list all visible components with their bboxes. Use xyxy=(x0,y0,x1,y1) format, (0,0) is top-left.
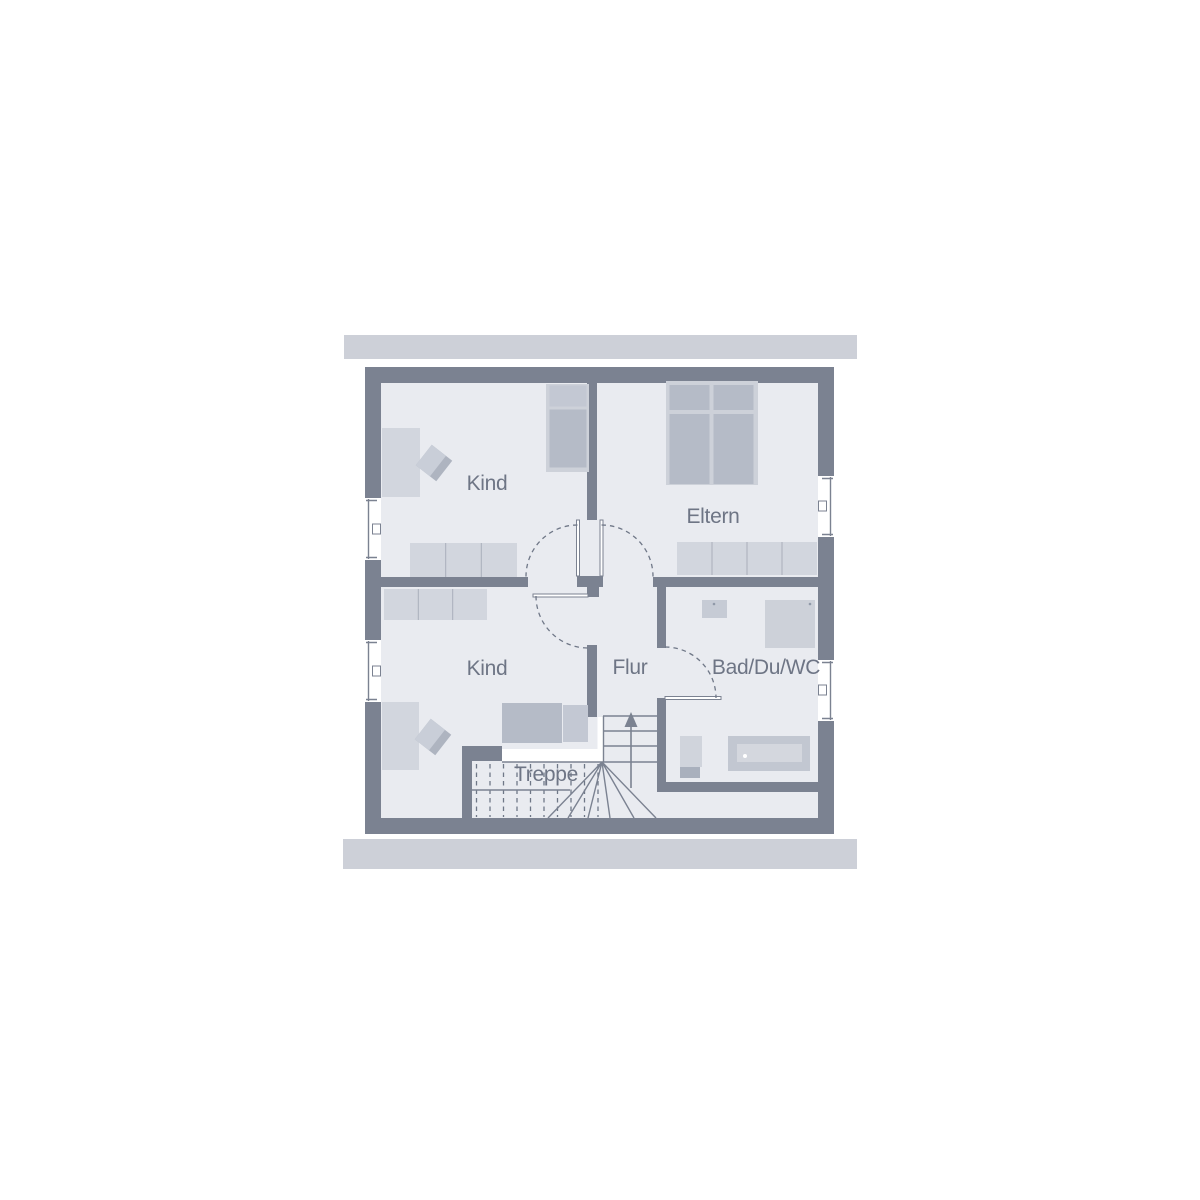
room-label-bad: Bad/Du/WC xyxy=(712,656,820,680)
bed-mattress xyxy=(550,410,587,468)
stair-head-block xyxy=(462,746,502,761)
wardrobe xyxy=(410,543,517,577)
floor-plan-drawing xyxy=(0,0,1200,1200)
sink xyxy=(702,600,727,618)
wardrobe xyxy=(384,589,487,620)
bed-mattress xyxy=(714,414,754,484)
stair-landing-edge xyxy=(598,717,604,762)
bathtub-basin xyxy=(737,744,802,762)
bed-pillow xyxy=(550,386,587,407)
room-label-flur: Flur xyxy=(613,656,648,680)
shower xyxy=(765,600,815,648)
window-eltern-right xyxy=(818,476,834,537)
window-bad-right xyxy=(818,660,834,721)
bed-pillow xyxy=(714,385,754,410)
stair-landing-edge xyxy=(502,749,603,762)
floor-plan: Kind Eltern Kind Flur Bad/Du/WC Treppe xyxy=(0,0,1200,1200)
toilet xyxy=(680,736,702,767)
window-kind1-left xyxy=(365,498,381,560)
bed-pillow xyxy=(670,385,710,410)
room-label-kind-2: Kind xyxy=(467,657,508,681)
room-label-eltern: Eltern xyxy=(686,505,739,529)
window-kind2-left xyxy=(365,640,381,702)
roof-strip-bottom xyxy=(343,839,857,869)
desk xyxy=(382,428,420,497)
roof-strip-top xyxy=(344,335,857,359)
bed-mattress xyxy=(670,414,710,484)
desk xyxy=(382,702,419,770)
bathtub-drain xyxy=(743,754,747,758)
room-label-treppe: Treppe xyxy=(514,763,578,787)
bed-pillow xyxy=(563,705,588,742)
room-label-kind-1: Kind xyxy=(467,472,508,496)
bed xyxy=(502,703,562,743)
toilet-tank xyxy=(680,767,700,778)
